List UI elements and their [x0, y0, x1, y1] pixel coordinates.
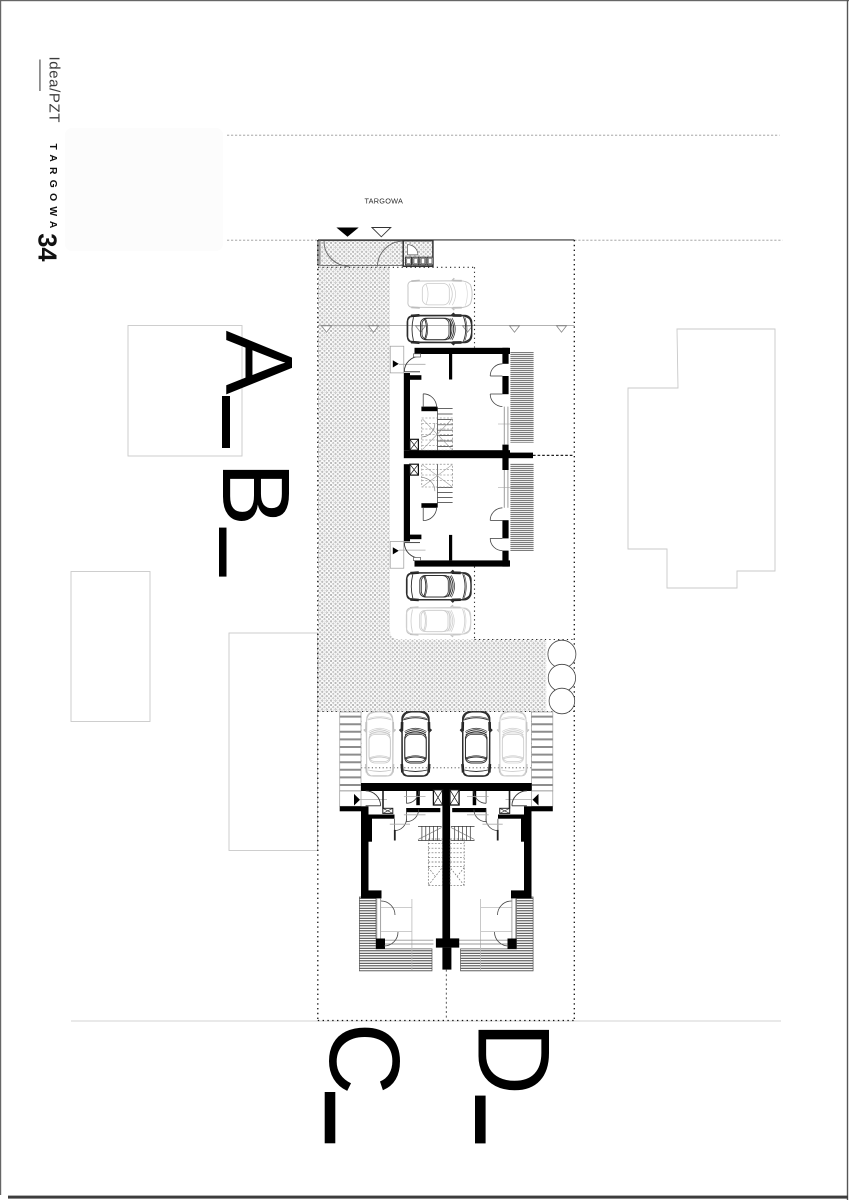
svg-text:C: C — [308, 1023, 420, 1095]
svg-text:TARGOWA: TARGOWA — [365, 197, 404, 206]
svg-text:B: B — [202, 462, 309, 526]
svg-text:A: A — [205, 331, 312, 395]
svg-text:Idea/PZT: Idea/PZT — [46, 57, 63, 124]
svg-text:34: 34 — [33, 233, 61, 262]
svg-text:TARGOWA: TARGOWA — [47, 144, 58, 234]
svg-text:D: D — [457, 1022, 571, 1096]
